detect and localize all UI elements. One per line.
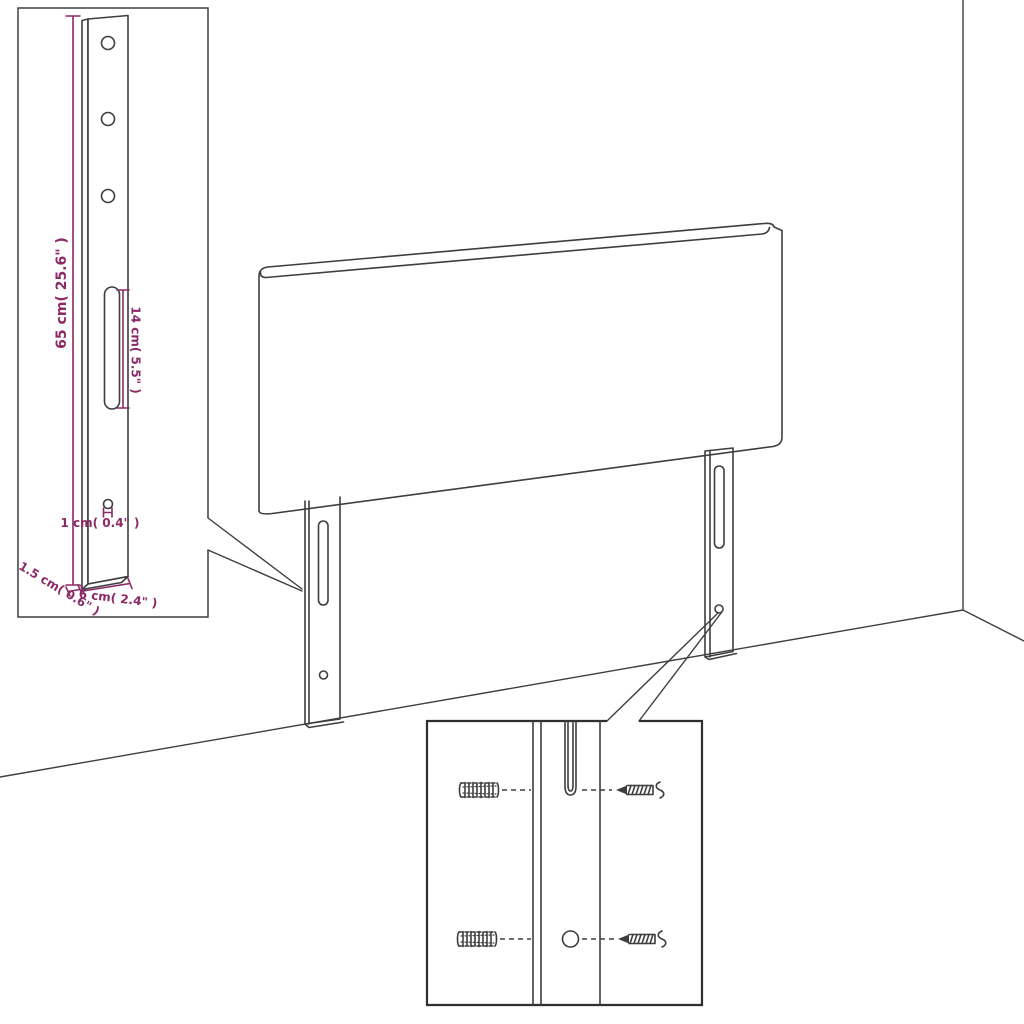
mounting-hole	[563, 931, 579, 947]
left-leg-hole	[320, 671, 328, 679]
headboard	[259, 223, 782, 727]
screw-icon	[618, 931, 666, 947]
screw-icon	[616, 782, 664, 798]
bottom-detail-inset	[427, 613, 722, 1006]
dim-slot-label: 14 cm( 5.5" )	[129, 306, 143, 393]
left-inset-callout-lines	[208, 518, 302, 591]
mounting-slot-outer	[565, 721, 576, 795]
right-leg-hole	[715, 605, 723, 613]
headboard-panel	[259, 223, 782, 514]
dim-height-label: 65 cm( 25.6" )	[54, 237, 70, 349]
floor-line	[0, 610, 1024, 777]
wall-plug-icon	[458, 932, 497, 947]
left-leg-slot	[319, 521, 329, 605]
diagram-canvas: 65 cm( 25.6" ) 14 cm( 5.5" ) 1 cm( 0.4" …	[0, 0, 1024, 1024]
wall-plug-icon	[460, 783, 499, 798]
assembly-diagram: 65 cm( 25.6" ) 14 cm( 5.5" ) 1 cm( 0.4" …	[0, 0, 1024, 1024]
headboard-left-leg	[305, 497, 344, 728]
right-leg-slot	[715, 466, 725, 548]
mounting-leg-edges	[533, 721, 600, 1005]
leg-side-view	[82, 16, 128, 590]
mounting-slot-inner	[568, 721, 573, 791]
leg-side-face	[82, 19, 88, 590]
dim-hole-label: 1 cm( 0.4" )	[61, 516, 140, 530]
